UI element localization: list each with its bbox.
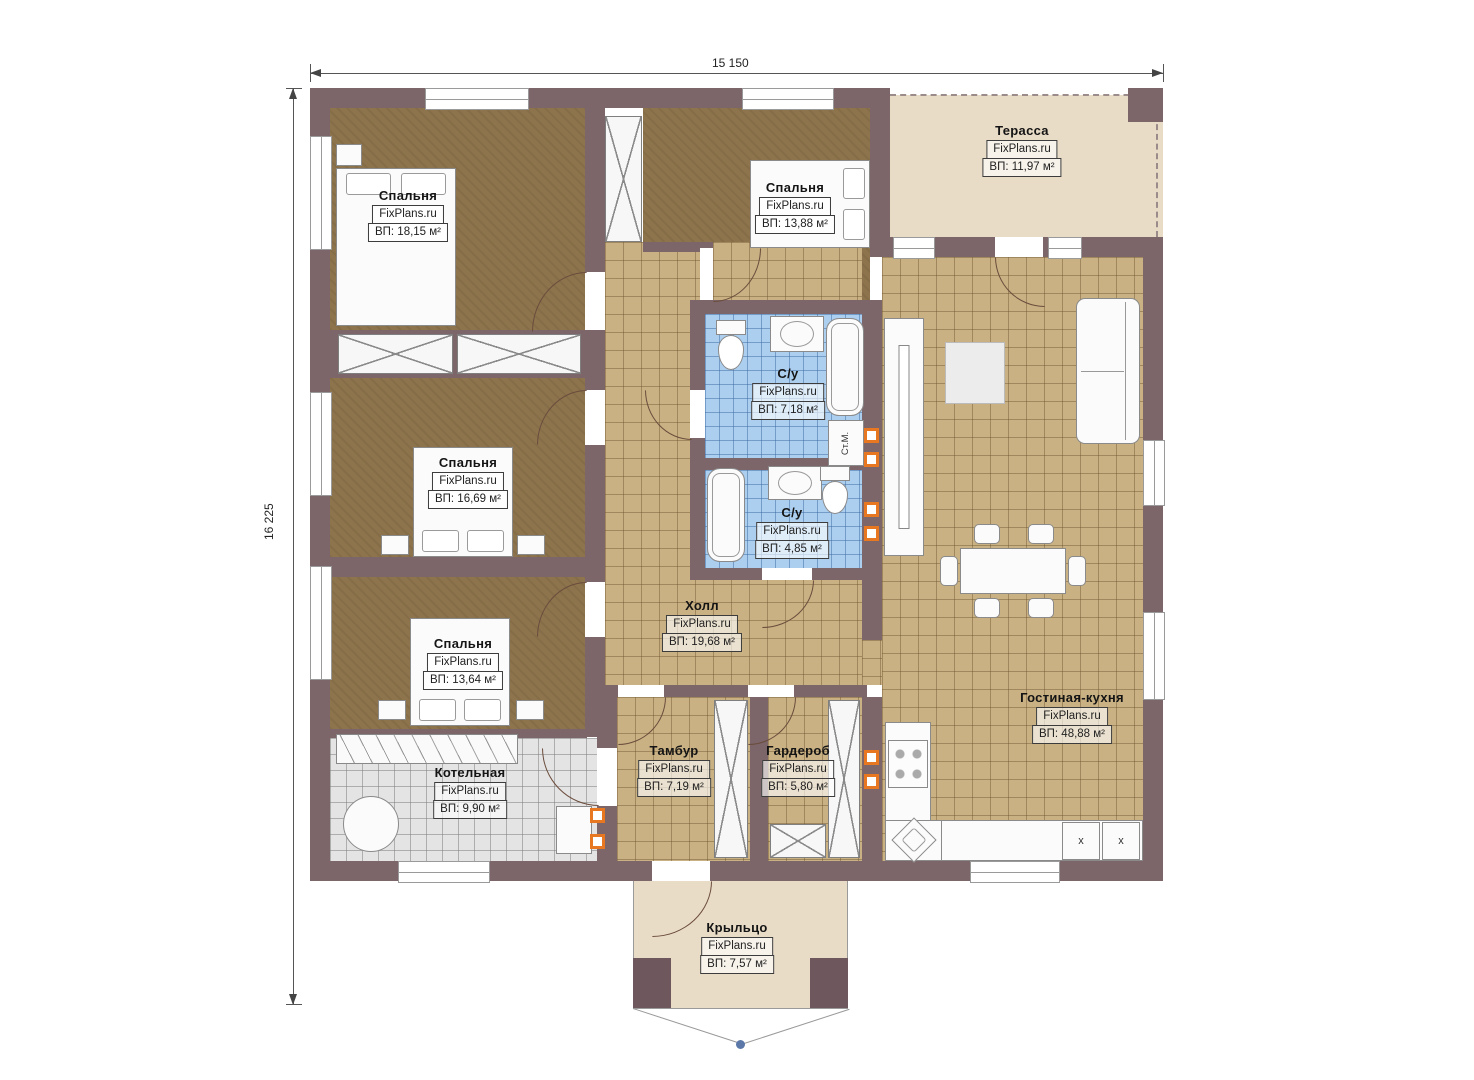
floor-plan: 15 150 16 225 <box>0 0 1474 1080</box>
window <box>310 392 332 496</box>
toilet <box>714 320 748 370</box>
wall-terrace-corner <box>1128 88 1163 122</box>
extension-tick <box>1163 64 1164 82</box>
room-label-bedroom-bl: Спальня FixPlans.ru ВП: 13,64 м² <box>423 636 503 690</box>
room-name: С/у <box>777 366 798 381</box>
door-opening <box>690 390 705 438</box>
porch-pillar <box>810 958 848 1008</box>
window <box>742 88 834 110</box>
appliance-mark: x <box>1062 822 1100 860</box>
wardrobe <box>714 700 748 858</box>
door-opening <box>618 685 664 697</box>
sink <box>768 466 822 500</box>
room-area: ВП: 9,90 м² <box>433 800 507 819</box>
nightstand <box>516 700 544 720</box>
room-label-bathroom-top: С/у FixPlans.ru ВП: 7,18 м² <box>751 366 825 420</box>
room-area: ВП: 5,80 м² <box>761 778 835 797</box>
room-name: Крыльцо <box>706 920 767 935</box>
wall-bedroom-top-stub <box>643 242 700 252</box>
room-label-boiler-room: Котельная FixPlans.ru ВП: 9,90 м² <box>433 765 507 819</box>
chair <box>974 598 1000 618</box>
wall-right <box>1143 257 1163 881</box>
room-name: Котельная <box>435 765 506 780</box>
room-label-bedroom-top: Спальня FixPlans.ru ВП: 13,88 м² <box>755 180 835 234</box>
watermark: FixPlans.ru <box>427 653 499 672</box>
watermark: FixPlans.ru <box>1036 707 1108 726</box>
arrow-right-icon <box>1152 69 1163 77</box>
window <box>310 136 332 250</box>
porch-step <box>633 1008 848 1009</box>
door-opening <box>995 237 1043 257</box>
door-opening <box>748 685 794 697</box>
room-name: Спальня <box>434 636 492 651</box>
nightstand <box>381 535 409 555</box>
watermark: FixPlans.ru <box>762 760 834 779</box>
room-label-terrace: Терасса FixPlans.ru ВП: 11,97 м² <box>982 123 1061 177</box>
wall-ml-bl-divider <box>330 557 585 577</box>
arrow-up-icon <box>289 88 297 99</box>
orange-marker <box>864 774 879 789</box>
chair <box>940 556 958 586</box>
dining-table <box>960 548 1066 594</box>
wall-terrace-left <box>870 88 890 257</box>
door-opening <box>585 582 605 637</box>
wardrobe <box>338 334 453 374</box>
door-opening <box>585 390 605 445</box>
room-name: Терасса <box>995 123 1049 138</box>
room-label-living-kitchen: Гостиная-кухня FixPlans.ru ВП: 48,88 м² <box>1020 690 1124 744</box>
window <box>893 237 935 259</box>
porch-marker <box>736 1040 745 1049</box>
door-opening <box>762 568 812 580</box>
room-name: Спальня <box>439 455 497 470</box>
orange-marker <box>864 526 879 541</box>
washing-machine: Ст.М. <box>828 420 864 466</box>
orange-marker <box>864 452 879 467</box>
watermark: FixPlans.ru <box>372 205 444 224</box>
boiler <box>343 796 399 852</box>
floor-hall-passage <box>862 640 882 685</box>
dimension-width-label: 15 150 <box>712 56 749 70</box>
room-area: ВП: 16,69 м² <box>428 490 508 509</box>
porch-pillar <box>633 958 671 1008</box>
sofa <box>1076 298 1140 444</box>
tv-stand <box>884 318 924 556</box>
room-name: Гостиная-кухня <box>1020 690 1124 705</box>
terrace-edge-dashed <box>890 94 1160 96</box>
room-label-tambour: Тамбур FixPlans.ru ВП: 7,19 м² <box>637 743 711 797</box>
door-opening <box>585 272 605 330</box>
appliance-mark: x <box>1102 822 1140 860</box>
window <box>1143 440 1165 506</box>
sink <box>770 316 824 352</box>
watermark: FixPlans.ru <box>986 140 1058 159</box>
wall-bath-left <box>690 314 705 580</box>
door-opening <box>700 248 713 300</box>
room-name: Спальня <box>766 180 824 195</box>
room-label-bedroom-tl: Спальня FixPlans.ru ВП: 18,15 м² <box>368 188 448 242</box>
room-area: ВП: 19,68 м² <box>662 633 742 652</box>
watermark: FixPlans.ru <box>434 782 506 801</box>
wardrobe <box>457 334 581 374</box>
dimension-height-label: 16 225 <box>262 503 276 540</box>
watermark: FixPlans.ru <box>666 615 738 634</box>
orange-marker <box>590 808 605 823</box>
window <box>1143 612 1165 700</box>
room-name: Гардероб <box>766 743 830 758</box>
orange-marker <box>864 428 879 443</box>
chair <box>974 524 1000 544</box>
orange-marker <box>864 750 879 765</box>
wall-hall-living <box>862 314 882 640</box>
room-label-bedroom-ml: Спальня FixPlans.ru ВП: 16,69 м² <box>428 455 508 509</box>
watermark: FixPlans.ru <box>759 197 831 216</box>
room-label-hall: Холл FixPlans.ru ВП: 19,68 м² <box>662 598 742 652</box>
wall-bath-top <box>690 300 882 314</box>
nightstand <box>517 535 545 555</box>
room-area: ВП: 11,97 м² <box>982 158 1061 177</box>
bathtub <box>707 468 745 562</box>
nightstand <box>378 700 406 720</box>
room-area: ВП: 18,15 м² <box>368 223 448 242</box>
chair <box>1068 556 1086 586</box>
arrow-down-icon <box>289 994 297 1005</box>
room-label-porch: Крыльцо FixPlans.ru ВП: 7,57 м² <box>700 920 774 974</box>
porch-step <box>633 1008 742 1044</box>
door-opening <box>597 748 617 806</box>
room-area: ВП: 7,57 м² <box>700 955 774 974</box>
nightstand <box>336 144 362 166</box>
watermark: FixPlans.ru <box>432 472 504 491</box>
room-name: Спальня <box>379 188 437 203</box>
window <box>970 861 1060 883</box>
room-name: С/у <box>781 505 802 520</box>
room-area: ВП: 48,88 м² <box>1032 725 1112 744</box>
washing-machine-label: Ст.М. <box>840 431 851 454</box>
room-area: ВП: 7,18 м² <box>751 401 825 420</box>
watermark: FixPlans.ru <box>638 760 710 779</box>
room-area: ВП: 7,19 м² <box>637 778 711 797</box>
orange-marker <box>864 502 879 517</box>
bathtub <box>826 318 864 416</box>
shelving <box>336 734 518 764</box>
window <box>310 566 332 680</box>
stove <box>888 740 928 788</box>
room-area: ВП: 13,88 м² <box>755 215 835 234</box>
room-area: ВП: 13,64 м² <box>423 671 503 690</box>
rug <box>945 342 1005 404</box>
orange-marker <box>590 834 605 849</box>
chair <box>1028 524 1054 544</box>
room-label-bathroom-bottom: С/у FixPlans.ru ВП: 4,85 м² <box>755 505 829 559</box>
window <box>398 861 490 883</box>
room-area: ВП: 4,85 м² <box>755 540 829 559</box>
room-label-wardrobe-room: Гардероб FixPlans.ru ВП: 5,80 м² <box>761 743 835 797</box>
watermark: FixPlans.ru <box>756 522 828 541</box>
arrow-left-icon <box>310 69 321 77</box>
wardrobe <box>770 824 826 858</box>
window <box>1048 237 1082 259</box>
room-name: Тамбур <box>650 743 699 758</box>
wall-bedroom-ml-right <box>585 348 605 577</box>
room-name: Холл <box>685 598 719 613</box>
dimension-line-top <box>310 73 1163 74</box>
equipment-box <box>556 806 592 854</box>
chair <box>1028 598 1054 618</box>
watermark: FixPlans.ru <box>701 937 773 956</box>
watermark: FixPlans.ru <box>752 383 824 402</box>
door-opening <box>652 861 710 881</box>
dimension-line-left <box>293 88 294 1005</box>
wardrobe <box>605 116 642 242</box>
porch-step <box>741 1009 850 1045</box>
window <box>425 88 529 110</box>
